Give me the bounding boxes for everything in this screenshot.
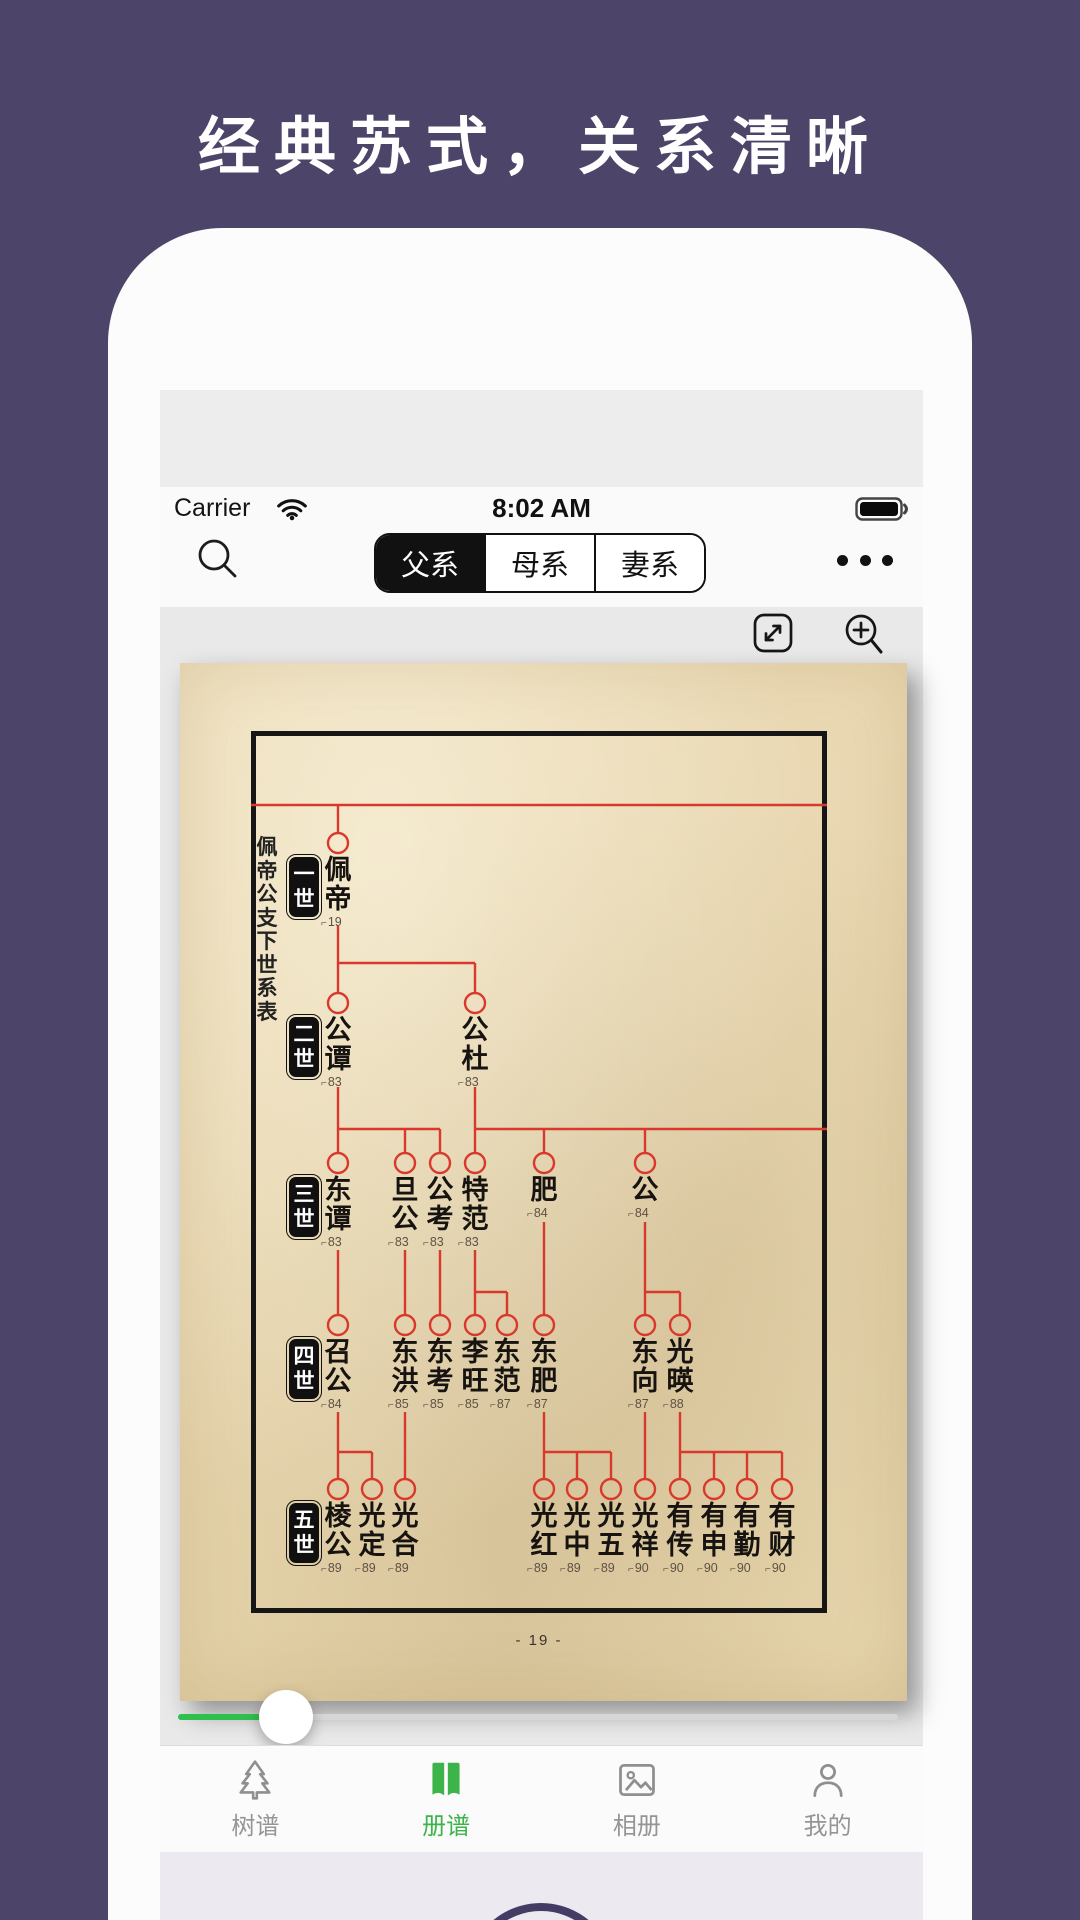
person-node[interactable]: 李旺: [460, 1338, 490, 1396]
tab-tree[interactable]: 树谱: [160, 1746, 351, 1852]
fullscreen-button[interactable]: [753, 613, 793, 653]
book-icon: [424, 1758, 468, 1802]
lineage-segmented-control: 父系母系妻系: [374, 533, 706, 593]
person-page-ref: 19: [321, 915, 361, 929]
person-node[interactable]: 光中: [562, 1502, 592, 1560]
tab-label: 我的: [804, 1806, 852, 1841]
person-node[interactable]: 有勤: [732, 1502, 762, 1560]
person-page-ref: 83: [458, 1075, 498, 1089]
person-page-ref: 83: [321, 1075, 361, 1089]
person-node[interactable]: 特范: [460, 1176, 490, 1234]
clock-label: 8:02 AM: [160, 493, 923, 524]
tab-label: 树谱: [231, 1806, 279, 1841]
person-node[interactable]: 公谭: [323, 1016, 353, 1074]
person-page-ref: 90: [765, 1561, 805, 1575]
hero-title: 经典苏式，关系清晰: [0, 96, 1080, 186]
tab-person[interactable]: 我的: [732, 1746, 923, 1852]
person-page-ref: 83: [423, 1235, 463, 1249]
tree-icon: [233, 1758, 277, 1802]
person-node[interactable]: 东考: [425, 1338, 455, 1396]
person-page-ref: 87: [628, 1397, 668, 1411]
person-node[interactable]: 公考: [425, 1176, 455, 1234]
person-node[interactable]: 东谭: [323, 1176, 353, 1234]
person-node[interactable]: 东范: [492, 1338, 522, 1396]
person-page-ref: 87: [490, 1397, 530, 1411]
person-node[interactable]: 有传: [665, 1502, 695, 1560]
fullscreen-icon: [753, 641, 793, 656]
generation-badge-2: 二世: [286, 1014, 322, 1080]
zoom-in-icon: [842, 645, 886, 660]
chart-side-title: 佩帝公支下世系表: [255, 836, 279, 1024]
generation-badge-label: 二世: [289, 1017, 319, 1077]
person-page-ref: 85: [423, 1397, 463, 1411]
app-screenshot: 经典苏式，关系清晰 Carrier 8:02 AM: [0, 0, 1080, 1920]
person-node[interactable]: 召公: [323, 1338, 353, 1396]
person-node[interactable]: 肥: [529, 1176, 559, 1205]
person-node[interactable]: 佩帝: [323, 856, 353, 914]
ellipsis-icon: [882, 555, 893, 566]
ellipsis-icon: [837, 555, 848, 566]
person-page-ref: 90: [628, 1561, 668, 1575]
person-node[interactable]: 光暎: [665, 1338, 695, 1396]
album-icon: [615, 1758, 659, 1802]
person-node[interactable]: 有申: [699, 1502, 729, 1560]
person-page-ref: 84: [628, 1206, 668, 1220]
search-icon: [194, 571, 242, 586]
page-number: - 19 -: [251, 1632, 827, 1649]
person-page-ref: 90: [730, 1561, 770, 1575]
tab-label: 册谱: [422, 1806, 470, 1841]
person-node[interactable]: 光五: [596, 1502, 626, 1560]
screen-background: [160, 390, 923, 487]
page-slider-thumb[interactable]: [259, 1690, 313, 1744]
generation-badge-4: 四世: [286, 1336, 322, 1402]
generation-badge-3: 三世: [286, 1174, 322, 1240]
generation-badge-label: 三世: [289, 1177, 319, 1237]
person-icon: [806, 1758, 850, 1802]
generation-badge-label: 五世: [289, 1503, 319, 1563]
generation-badge-5: 五世: [286, 1500, 322, 1566]
ellipsis-icon: [860, 555, 871, 566]
search-button[interactable]: [194, 535, 242, 583]
zoom-in-button[interactable]: [842, 611, 886, 657]
person-node[interactable]: 光祥: [630, 1502, 660, 1560]
person-node[interactable]: 公: [630, 1176, 660, 1205]
segment-1[interactable]: 母系: [486, 535, 596, 591]
person-node[interactable]: 旦公: [390, 1176, 420, 1234]
segment-0[interactable]: 父系: [376, 535, 486, 591]
person-node[interactable]: 东洪: [390, 1338, 420, 1396]
nav-row: 父系母系妻系: [160, 527, 923, 603]
person-node[interactable]: 光定: [357, 1502, 387, 1560]
person-page-ref: 83: [388, 1235, 428, 1249]
tab-album[interactable]: 相册: [542, 1746, 733, 1852]
tab-bar: 树谱册谱相册我的: [160, 1745, 923, 1852]
status-bar: Carrier 8:02 AM: [160, 491, 923, 523]
person-page-ref: 89: [388, 1561, 428, 1575]
battery-icon: [855, 497, 909, 526]
person-node[interactable]: 东向: [630, 1338, 660, 1396]
header-bar: Carrier 8:02 AM: [160, 487, 923, 607]
person-node[interactable]: 光合: [390, 1502, 420, 1560]
person-page-ref: 87: [527, 1397, 567, 1411]
person-page-ref: 83: [321, 1235, 361, 1249]
person-node[interactable]: 光红: [529, 1502, 559, 1560]
generation-badge-1: 一世: [286, 854, 322, 920]
person-page-ref: 85: [388, 1397, 428, 1411]
person-node[interactable]: 公杜: [460, 1016, 490, 1074]
person-page-ref: 84: [527, 1206, 567, 1220]
more-button[interactable]: [835, 545, 895, 575]
person-node[interactable]: 东肥: [529, 1338, 559, 1396]
person-node[interactable]: 棱公: [323, 1502, 353, 1560]
generation-badge-label: 一世: [289, 857, 319, 917]
person-node[interactable]: 有财: [767, 1502, 797, 1560]
tab-book[interactable]: 册谱: [351, 1746, 542, 1852]
segment-2[interactable]: 妻系: [596, 535, 704, 591]
tab-label: 相册: [613, 1806, 661, 1841]
person-page-ref: 88: [663, 1397, 703, 1411]
generation-badge-label: 四世: [289, 1339, 319, 1399]
person-page-ref: 84: [321, 1397, 361, 1411]
person-page-ref: 83: [458, 1235, 498, 1249]
